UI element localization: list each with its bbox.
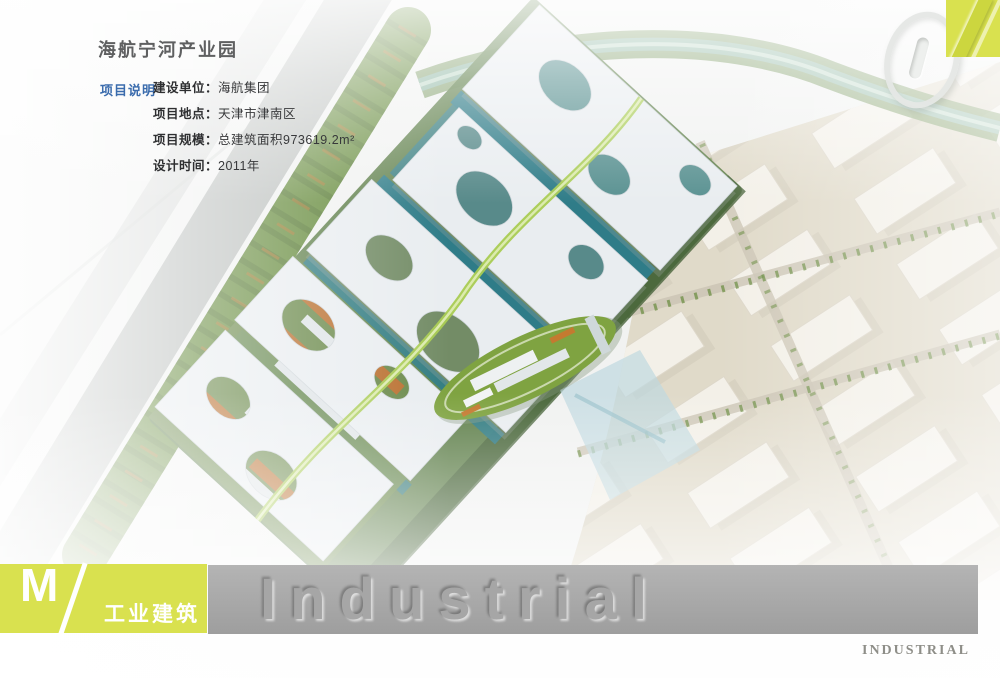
detail-value: 海航集团 (218, 81, 270, 95)
page-number-one-block (946, 0, 1000, 57)
detail-label: 项目规模： (153, 133, 218, 147)
footer-bar: Industrial (208, 565, 978, 634)
project-details: 建设单位：海航集团 项目地点：天津市津南区 项目规模：总建筑面积973619.2… (153, 75, 355, 179)
watermark-text: Industrial (208, 565, 978, 634)
slash-icon (57, 562, 87, 637)
detail-value: 2011年 (218, 159, 260, 173)
detail-label: 设计时间： (153, 159, 218, 173)
detail-row-owner: 建设单位：海航集团 (153, 75, 355, 101)
presentation-page: 海航宁河产业园 项目说明 建设单位：海航集团 项目地点：天津市津南区 项目规模：… (0, 0, 1000, 678)
detail-value: 总建筑面积973619.2m² (218, 133, 355, 147)
detail-label: 建设单位： (153, 81, 218, 95)
category-label: 工业建筑 (104, 598, 200, 628)
category-block: M 工业建筑 (0, 564, 207, 633)
detail-row-date: 设计时间：2011年 (153, 153, 355, 179)
category-letter: M (20, 560, 58, 611)
detail-row-scale: 项目规模：总建筑面积973619.2m² (153, 127, 355, 153)
detail-row-location: 项目地点：天津市津南区 (153, 101, 355, 127)
project-info-label: 项目说明 (100, 80, 156, 99)
detail-value: 天津市津南区 (218, 107, 296, 121)
industrial-corner-text: INDUSTRIAL (862, 643, 970, 659)
detail-label: 项目地点： (153, 107, 218, 121)
page-title: 海航宁河产业园 (98, 36, 238, 62)
